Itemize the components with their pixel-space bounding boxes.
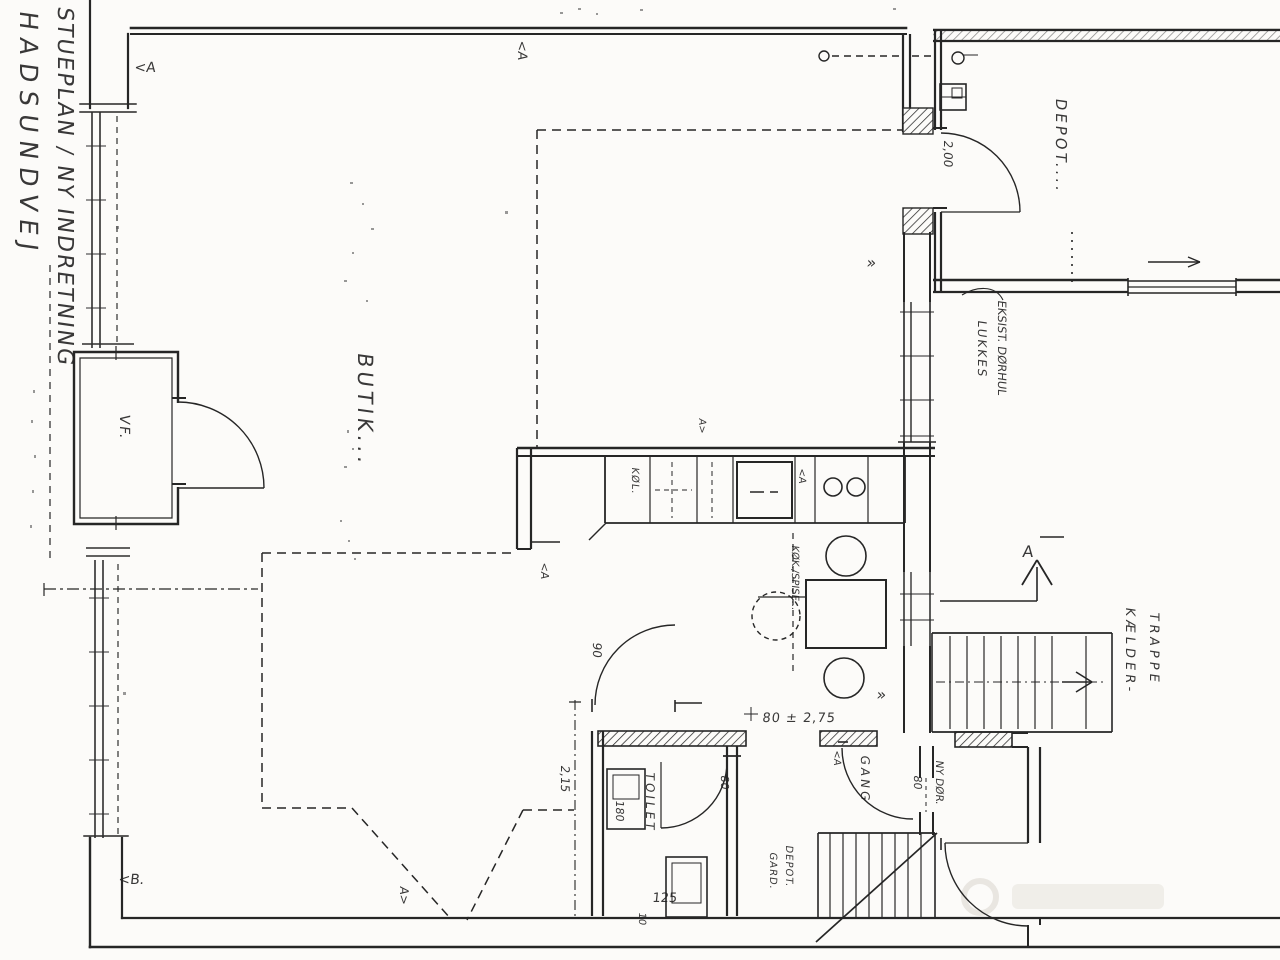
basement-staircase — [932, 633, 1112, 732]
dim-sink: 180 — [613, 800, 626, 823]
marker-top-left: <A — [134, 60, 157, 76]
label-toilet: TOILET — [643, 771, 657, 834]
marker-kitchen-door: <A — [538, 562, 551, 581]
kitchen-door-arc — [595, 625, 675, 705]
dim-small: 10 — [636, 912, 647, 926]
floorplan-scan: STUEPLAN / NY INDRETNING HADSUNDVEJ BUTI… — [0, 0, 1280, 960]
hob-burner — [847, 478, 865, 496]
depot-annex — [933, 30, 1280, 296]
leader-line — [962, 288, 1003, 300]
plan-title-line2: HADSUNDVEJ — [14, 9, 43, 260]
label-vf: VF. — [116, 413, 132, 441]
plan-title-line1: STUEPLAN / NY INDRETNING — [52, 5, 78, 369]
dim-corridor: 80 ± 2,75 — [762, 711, 837, 726]
label-basement-line2: TRAPPE — [1146, 610, 1161, 686]
label-basement-line1: KÆLDER- — [1122, 606, 1137, 696]
utility-symbol — [819, 51, 829, 61]
marker-top-center: <A — [514, 39, 529, 61]
marker-chevron-low: » — [876, 685, 888, 704]
label-butik: BUTIK... — [353, 351, 378, 469]
note-existing-door-line2: LUKKES — [975, 320, 989, 380]
label-understair-line1: DEPOT. — [783, 845, 794, 889]
oven — [737, 462, 792, 518]
hob-burner — [824, 478, 842, 496]
marker-section-a: A — [1022, 542, 1035, 561]
marker-kitchen-top: A> — [696, 418, 707, 435]
label-fridge: KØL. — [629, 467, 641, 496]
labels: STUEPLAN / NY INDRETNING HADSUNDVEJ BUTI… — [14, 5, 1161, 926]
vf-door-arc — [178, 402, 264, 488]
marker-hall: <A — [831, 750, 842, 767]
marker-bottom-left: <B. — [118, 872, 145, 888]
label-kitchen: KØK./SPISE... — [789, 545, 801, 612]
dim-depot-door: 2,00 — [941, 140, 955, 169]
note-new-door: NY DØR. — [933, 760, 945, 806]
dim-kitchen-door: 90 — [590, 642, 604, 659]
kitchen — [517, 448, 935, 712]
watermark-logo — [964, 881, 1164, 913]
chair — [824, 658, 864, 698]
chair — [826, 536, 866, 576]
label-depot: DEPOT.... — [1052, 97, 1070, 195]
marker-kitchen-counter: <A — [796, 468, 807, 485]
understair-stairs — [816, 833, 937, 942]
dim-hall-door: 80 — [911, 775, 924, 791]
note-existing-door-line1: EKSIST. DØRHUL — [995, 300, 1009, 398]
vestibule — [74, 346, 264, 530]
exterior-walls — [80, 0, 1280, 947]
section-arrow-a — [940, 537, 1064, 601]
marker-bottom-center: A> — [397, 886, 411, 906]
right-wall-passage — [819, 34, 936, 733]
shopfront-windows — [82, 112, 134, 838]
marker-chevron-mid: » — [866, 253, 878, 272]
dining-table — [806, 580, 886, 648]
label-gang: GANG — [858, 755, 872, 805]
fixture-symbol — [952, 52, 964, 64]
dim-toilet-door: 80 — [718, 775, 731, 791]
toilet-door-arc — [661, 762, 727, 828]
dim-wc: 125 — [652, 891, 678, 906]
label-understair-line2: GARD. — [767, 852, 778, 891]
hall-door-arc — [842, 748, 913, 819]
toilet-room — [592, 731, 741, 917]
dim-left-wall: 2,15 — [558, 765, 572, 794]
